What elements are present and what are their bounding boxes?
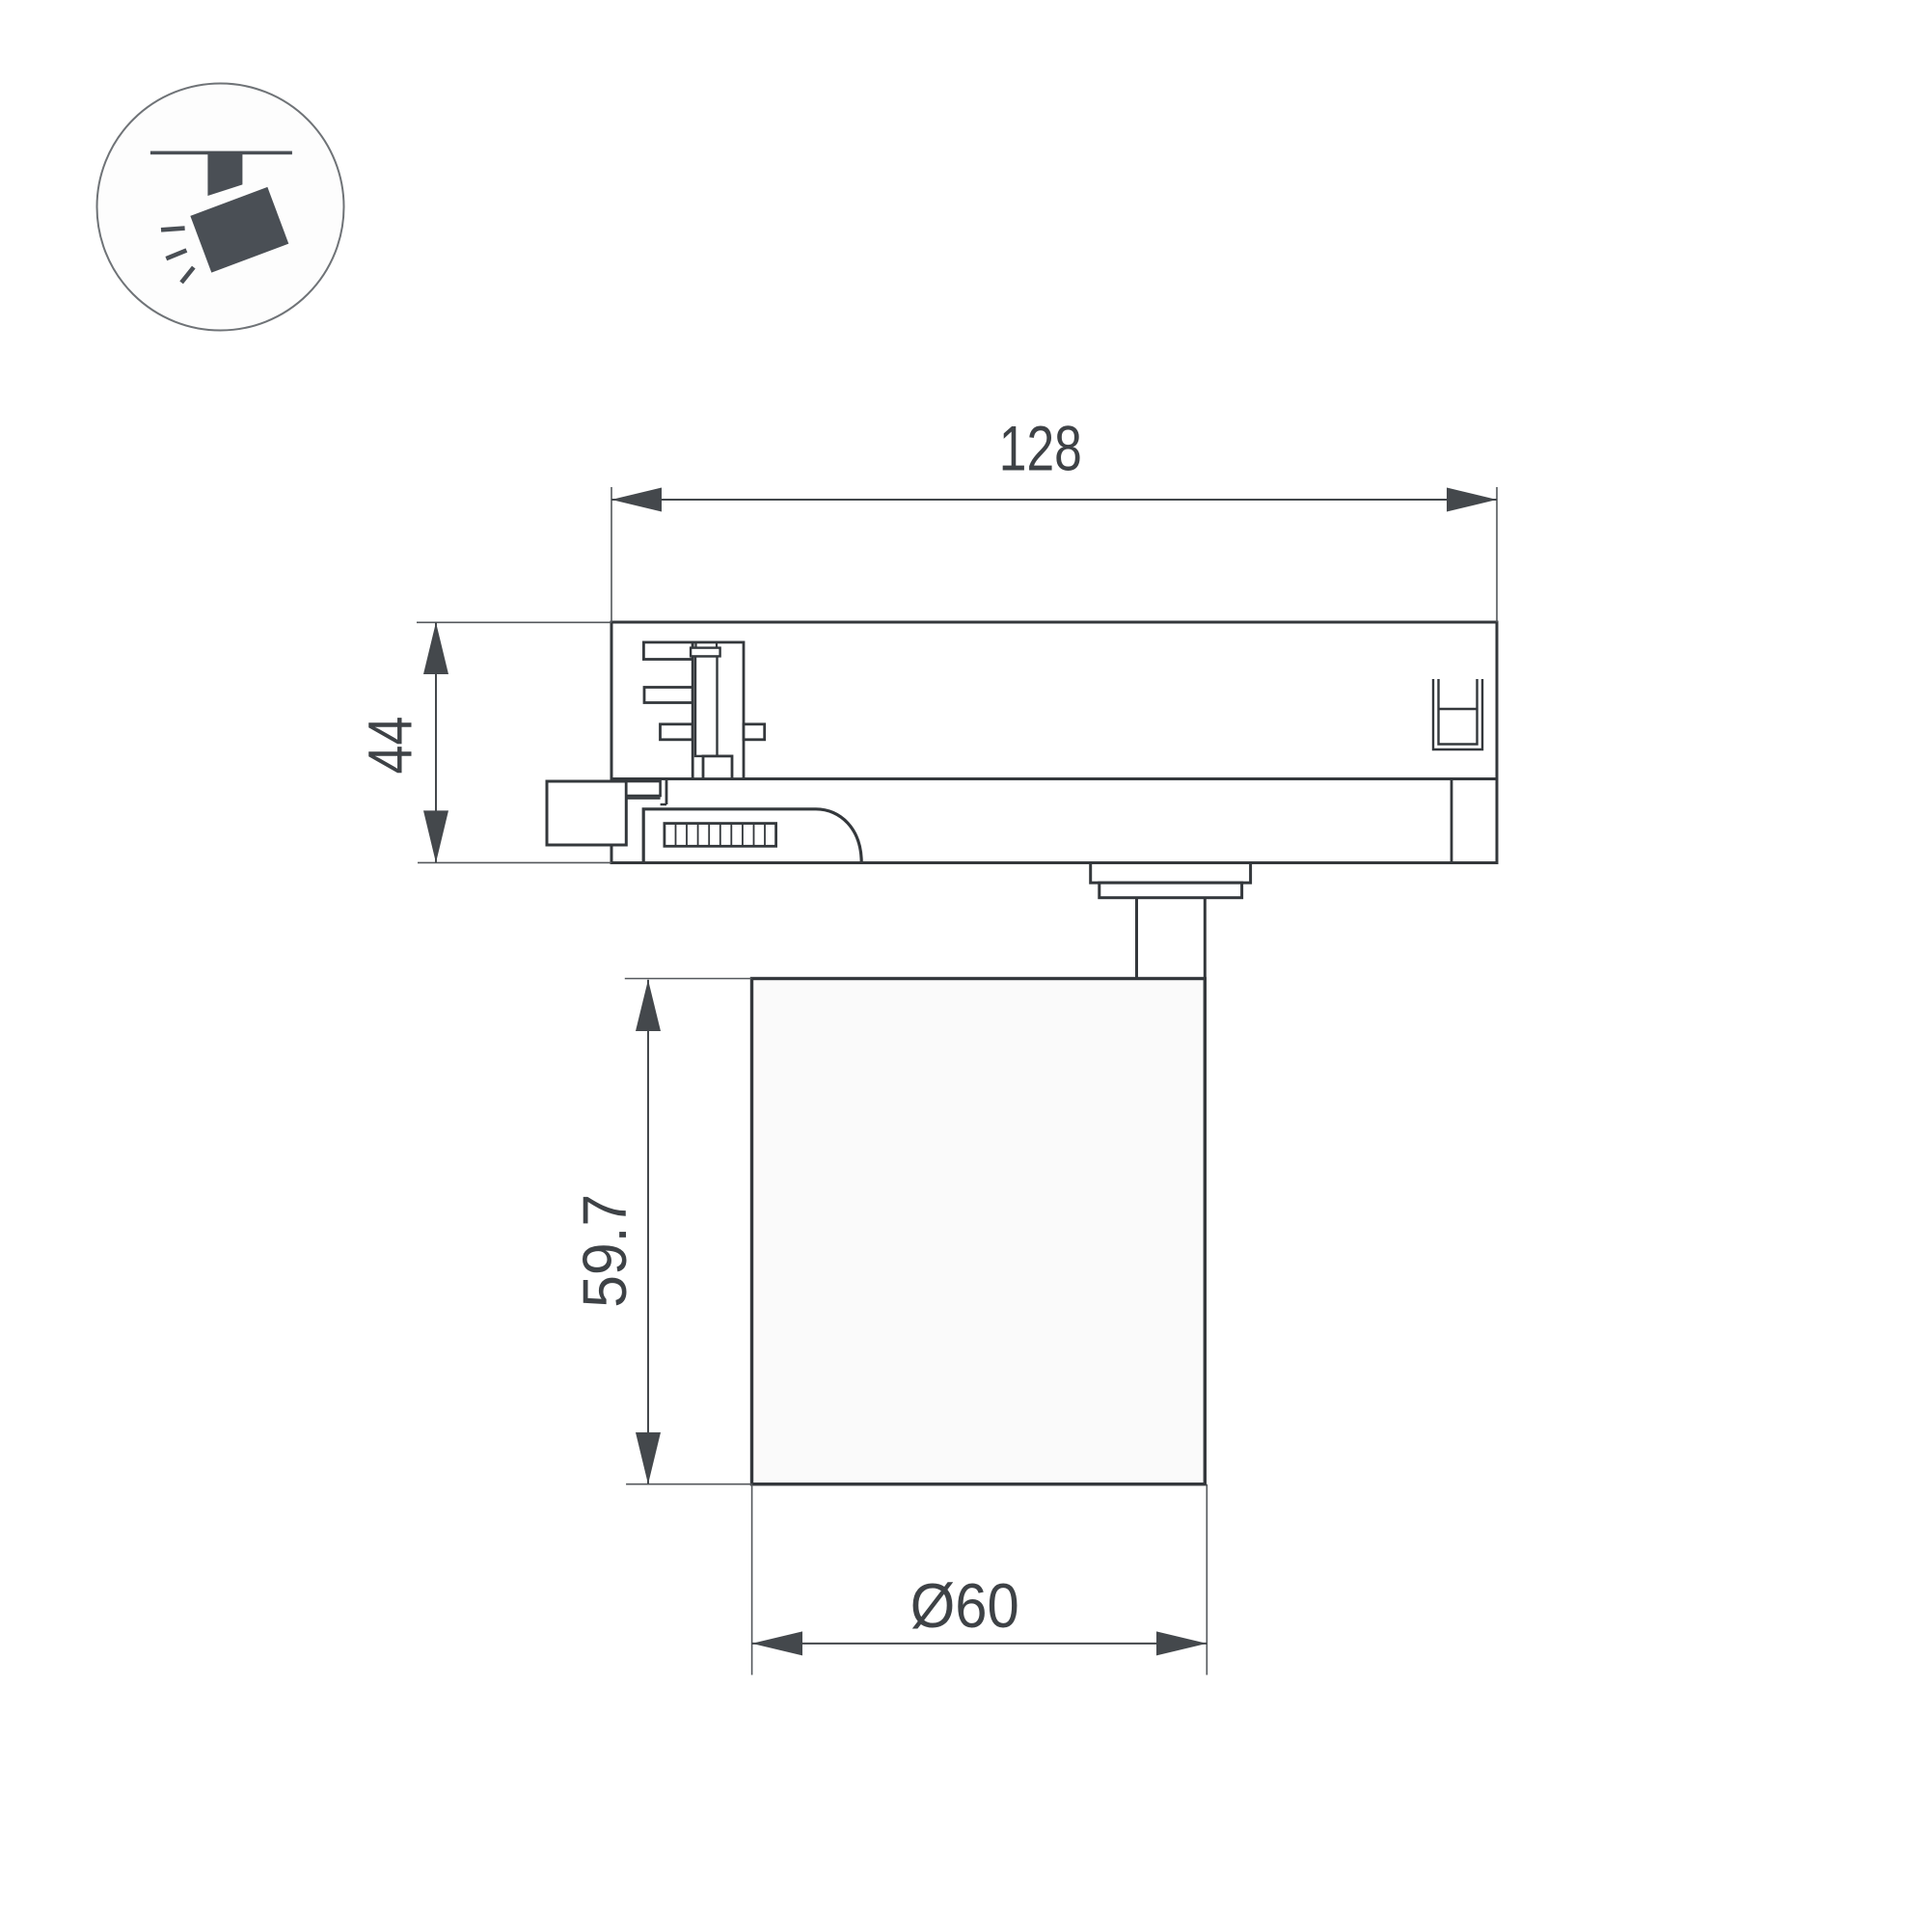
svg-text:128: 128 [999,413,1082,484]
svg-text:Ø60: Ø60 [910,1570,1019,1641]
svg-text:44: 44 [356,717,425,775]
svg-text:59.7: 59.7 [570,1194,639,1308]
